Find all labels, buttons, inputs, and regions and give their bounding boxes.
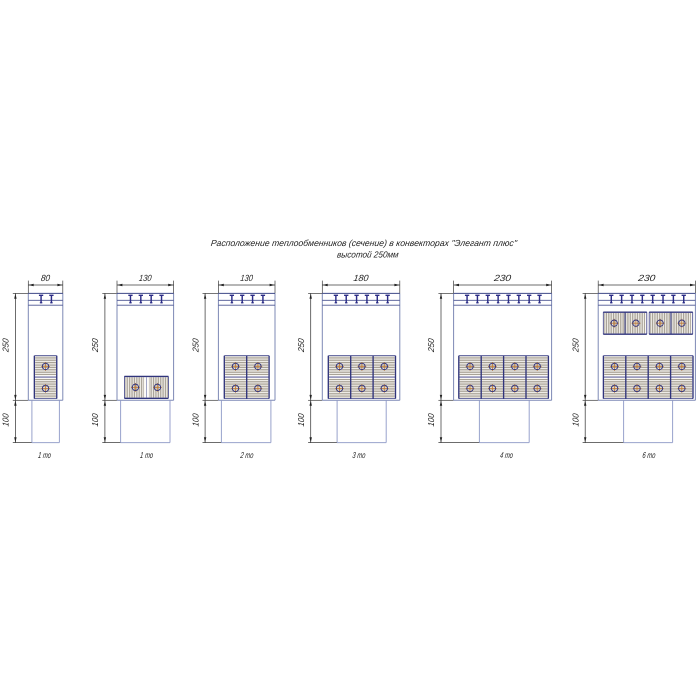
svg-text:100: 100 (1, 413, 11, 427)
svg-text:Расположение теплообменников (: Расположение теплообменников (сечение) в… (210, 238, 518, 248)
svg-text:230: 230 (637, 273, 656, 283)
svg-text:3 то: 3 то (352, 450, 366, 460)
svg-text:1 то: 1 то (140, 450, 154, 460)
svg-text:250: 250 (90, 338, 100, 354)
svg-text:1 то: 1 то (37, 450, 51, 460)
svg-text:250: 250 (190, 338, 200, 354)
svg-text:180: 180 (353, 273, 369, 283)
svg-text:250: 250 (570, 338, 580, 354)
svg-text:230: 230 (492, 273, 511, 283)
svg-text:100: 100 (190, 413, 200, 427)
svg-text:4 то: 4 то (499, 450, 513, 460)
svg-text:100: 100 (570, 413, 580, 427)
svg-text:6 то: 6 то (642, 450, 656, 460)
svg-text:80: 80 (40, 273, 50, 283)
svg-text:100: 100 (90, 413, 100, 427)
svg-text:130: 130 (240, 273, 254, 283)
svg-text:130: 130 (138, 273, 152, 283)
svg-text:250: 250 (426, 338, 436, 354)
svg-text:2 то: 2 то (239, 450, 254, 460)
svg-text:100: 100 (426, 413, 436, 427)
svg-text:250: 250 (296, 338, 306, 354)
svg-text:100: 100 (296, 413, 306, 427)
svg-text:250: 250 (1, 338, 11, 354)
svg-text:высотой 250мм: высотой 250мм (337, 250, 400, 260)
